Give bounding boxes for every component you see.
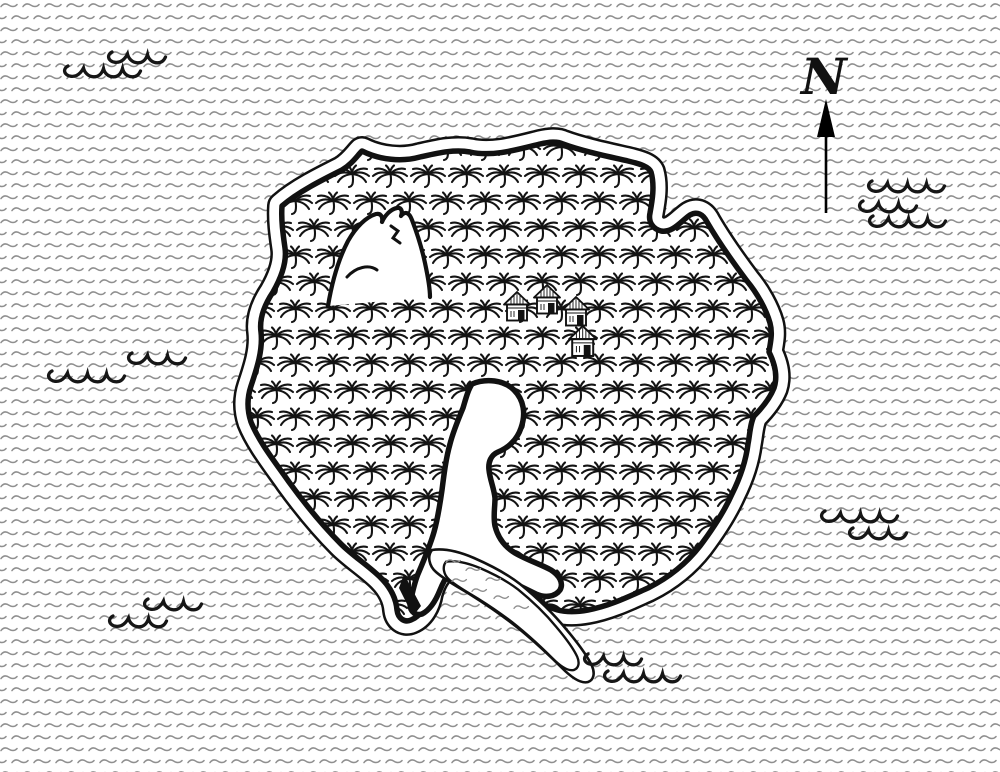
compass-label: N [799,47,849,106]
map-canvas: N [0,0,1000,772]
island-map: N [0,0,1000,772]
